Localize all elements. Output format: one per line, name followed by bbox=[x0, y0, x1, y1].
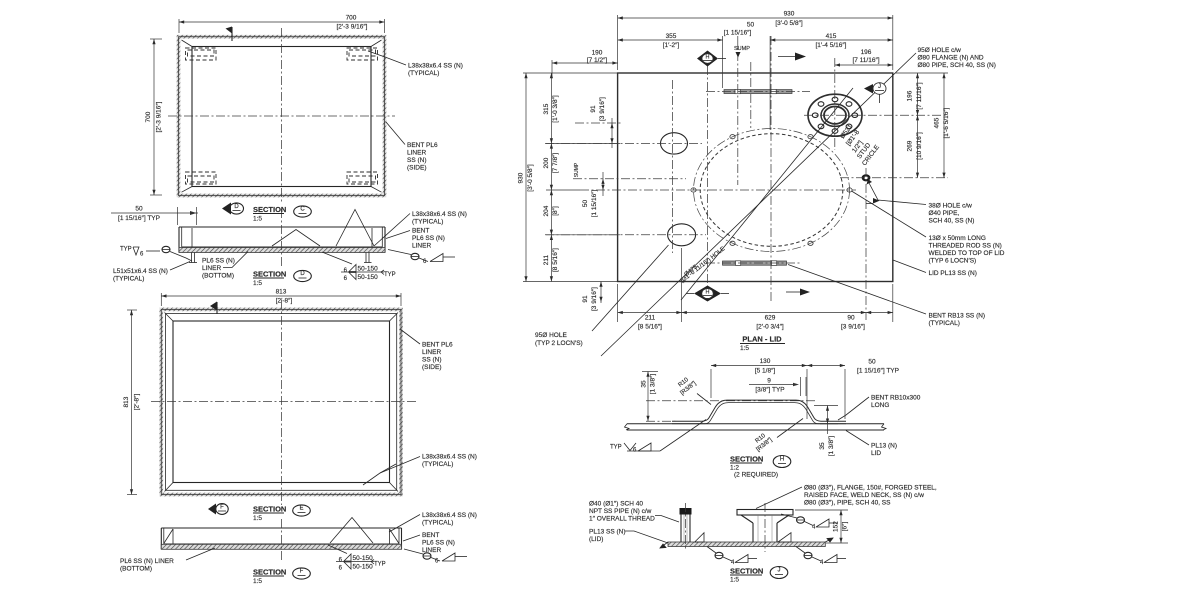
svg-text:SECTION: SECTION bbox=[253, 270, 286, 279]
svg-text:355: 355 bbox=[666, 33, 677, 40]
svg-text:1:5: 1:5 bbox=[253, 578, 262, 585]
svg-text:PL13 SS (N): PL13 SS (N) bbox=[589, 529, 626, 536]
svg-text:415: 415 bbox=[826, 33, 837, 40]
svg-text:315: 315 bbox=[543, 103, 550, 114]
svg-text:H: H bbox=[706, 290, 710, 296]
svg-text:SECTION: SECTION bbox=[730, 455, 763, 464]
svg-text:THREADED ROD SS (N): THREADED ROD SS (N) bbox=[929, 243, 1002, 250]
svg-text:196: 196 bbox=[861, 49, 872, 56]
svg-text:PLAN - LID: PLAN - LID bbox=[742, 335, 782, 344]
svg-text:930: 930 bbox=[784, 11, 795, 18]
svg-text:Ø80 (Ø3″), FLANGE, 150#, F: Ø80 (Ø3″), FLANGE, 150#, FORGED STEEL, bbox=[804, 485, 937, 492]
svg-text:SS (N): SS (N) bbox=[422, 357, 442, 364]
svg-text:190: 190 bbox=[592, 50, 603, 57]
svg-text:[8″]: [8″] bbox=[552, 206, 559, 216]
svg-text:BENT RB13 SS (N): BENT RB13 SS (N) bbox=[929, 313, 986, 320]
svg-text:[2′-3 9/16″]: [2′-3 9/16″] bbox=[156, 101, 163, 132]
svg-text:SECTION: SECTION bbox=[253, 568, 286, 577]
svg-text:LINER: LINER bbox=[412, 243, 431, 250]
svg-text:50-150: 50-150 bbox=[353, 564, 374, 571]
svg-text:[1 15/16″]: [1 15/16″] bbox=[591, 190, 598, 218]
svg-text:[7 11/16″]: [7 11/16″] bbox=[916, 82, 923, 109]
svg-text:(TYPICAL): (TYPICAL) bbox=[422, 461, 453, 468]
svg-text:Ø40 (Ø1″) SCH 40: Ø40 (Ø1″) SCH 40 bbox=[589, 501, 643, 508]
svg-text:930: 930 bbox=[518, 172, 525, 183]
svg-text:196: 196 bbox=[907, 90, 914, 101]
svg-text:(TYPICAL): (TYPICAL) bbox=[412, 219, 443, 226]
svg-text:TYP: TYP bbox=[120, 247, 132, 253]
svg-text:[1′-4 5/16″]: [1′-4 5/16″] bbox=[816, 42, 847, 49]
svg-text:SUMP: SUMP bbox=[574, 162, 580, 177]
svg-text:211: 211 bbox=[543, 254, 550, 265]
svg-text:BENT: BENT bbox=[412, 228, 429, 235]
svg-text:J: J bbox=[878, 84, 881, 90]
svg-text:LINER: LINER bbox=[202, 265, 221, 272]
svg-text:50: 50 bbox=[582, 200, 589, 208]
svg-text:BENT PL6: BENT PL6 bbox=[422, 342, 453, 349]
svg-text:TYP: TYP bbox=[384, 272, 396, 278]
svg-text:D: D bbox=[234, 204, 239, 210]
svg-text:Ø80 PIPE, SCH 40, SS (N): Ø80 PIPE, SCH 40, SS (N) bbox=[918, 62, 996, 69]
svg-text:(2 REQUIRED): (2 REQUIRED) bbox=[734, 472, 778, 479]
svg-text:50-150: 50-150 bbox=[358, 266, 379, 273]
svg-text:D: D bbox=[300, 271, 305, 277]
svg-text:[7 1/2″]: [7 1/2″] bbox=[587, 57, 608, 64]
svg-text:[3 9/16″]: [3 9/16″] bbox=[591, 287, 598, 311]
svg-text:91: 91 bbox=[590, 105, 597, 113]
svg-text:BENT: BENT bbox=[422, 532, 439, 539]
svg-text:Ø80 FLANGE (N) AND: Ø80 FLANGE (N) AND bbox=[918, 55, 984, 62]
svg-text:[3′-0 5/8″]: [3′-0 5/8″] bbox=[775, 20, 803, 27]
svg-text:(TYPICAL): (TYPICAL) bbox=[422, 520, 453, 527]
svg-text:[10 9/16″]: [10 9/16″] bbox=[916, 132, 923, 160]
svg-text:9: 9 bbox=[767, 378, 771, 385]
svg-text:PL6 SS (N): PL6 SS (N) bbox=[422, 540, 455, 547]
svg-text:[1′-0 3/8″]: [1′-0 3/8″] bbox=[552, 95, 559, 123]
svg-text:[1 15/16″] TYP: [1 15/16″] TYP bbox=[857, 368, 899, 375]
svg-text:95Ø HOLE c/w: 95Ø HOLE c/w bbox=[918, 47, 962, 54]
svg-text:91: 91 bbox=[582, 295, 589, 303]
svg-text:50: 50 bbox=[747, 22, 755, 29]
svg-text:[1 3/8″]: [1 3/8″] bbox=[828, 436, 835, 457]
svg-text:SECTION: SECTION bbox=[730, 567, 763, 576]
svg-text:(TYP 6 LOCN′S): (TYP 6 LOCN′S) bbox=[929, 258, 977, 265]
svg-text:(LID): (LID) bbox=[589, 536, 603, 543]
svg-text:200: 200 bbox=[543, 157, 550, 168]
svg-text:LONG: LONG bbox=[871, 402, 889, 409]
svg-text:(TYPICAL): (TYPICAL) bbox=[408, 70, 439, 77]
svg-text:H: H bbox=[780, 457, 784, 463]
svg-text:TYP: TYP bbox=[374, 562, 386, 568]
svg-text:50: 50 bbox=[135, 206, 143, 213]
svg-text:[2′-8″]: [2′-8″] bbox=[134, 394, 141, 411]
svg-text:211: 211 bbox=[645, 315, 656, 322]
svg-text:(SIDE): (SIDE) bbox=[407, 165, 427, 172]
svg-text:(TYP 2 LOCN′S): (TYP 2 LOCN′S) bbox=[535, 340, 583, 347]
svg-text:LID: LID bbox=[871, 450, 881, 457]
svg-text:[3′-0 5/8″]: [3′-0 5/8″] bbox=[527, 164, 534, 192]
svg-text:[5 1/8″]: [5 1/8″] bbox=[755, 368, 776, 375]
svg-text:90: 90 bbox=[847, 315, 855, 322]
svg-text:L51x51x6.4 SS (N): L51x51x6.4 SS (N) bbox=[113, 268, 168, 275]
svg-text:SUMP: SUMP bbox=[734, 46, 750, 52]
svg-text:813: 813 bbox=[123, 396, 130, 407]
svg-text:50-150: 50-150 bbox=[353, 555, 374, 562]
svg-text:465: 465 bbox=[934, 117, 941, 128]
svg-text:[3 9/16″]: [3 9/16″] bbox=[841, 324, 865, 331]
svg-text:LID PL13 SS (N): LID PL13 SS (N) bbox=[929, 270, 977, 277]
svg-text:F: F bbox=[300, 569, 304, 575]
svg-text:RAISED FACE, WELD NECK, SS: RAISED FACE, WELD NECK, SS (N) c/w bbox=[804, 492, 924, 499]
svg-text:130: 130 bbox=[760, 358, 771, 365]
svg-text:E: E bbox=[299, 506, 303, 512]
svg-text:1:5: 1:5 bbox=[730, 577, 739, 584]
svg-text:152: 152 bbox=[833, 521, 840, 532]
svg-text:[7 11/16″]: [7 11/16″] bbox=[852, 57, 879, 64]
svg-text:PL13 (N): PL13 (N) bbox=[871, 443, 897, 450]
svg-text:1:5: 1:5 bbox=[253, 280, 262, 287]
svg-text:LINER: LINER bbox=[422, 349, 441, 356]
svg-text:H: H bbox=[706, 55, 710, 61]
svg-text:L38x38x6.4 SS (N): L38x38x6.4 SS (N) bbox=[408, 63, 463, 70]
svg-text:[2′-0 3/4″]: [2′-0 3/4″] bbox=[756, 324, 784, 331]
svg-text:700: 700 bbox=[145, 111, 152, 122]
svg-text:PL6 SS (N): PL6 SS (N) bbox=[202, 258, 235, 265]
svg-text:35: 35 bbox=[819, 442, 826, 450]
svg-text:[1′-2″]: [1′-2″] bbox=[663, 42, 680, 49]
svg-text:[8 5/16″]: [8 5/16″] bbox=[552, 248, 559, 272]
svg-text:269: 269 bbox=[907, 140, 914, 151]
svg-text:SECTION: SECTION bbox=[253, 505, 286, 514]
svg-text:1:5: 1:5 bbox=[253, 515, 262, 522]
svg-text:[3/8″] TYP: [3/8″] TYP bbox=[755, 387, 784, 394]
svg-text:L38x38x6.4 SS (N): L38x38x6.4 SS (N) bbox=[422, 512, 477, 519]
svg-text:[2′-3 9/16″]: [2′-3 9/16″] bbox=[337, 24, 368, 31]
svg-text:(BOTTOM): (BOTTOM) bbox=[202, 273, 234, 280]
svg-text:BENT RB10x300: BENT RB10x300 bbox=[871, 395, 921, 402]
svg-text:204: 204 bbox=[543, 205, 550, 216]
svg-text:[7 7/8″]: [7 7/8″] bbox=[552, 153, 559, 174]
svg-text:1:5: 1:5 bbox=[740, 345, 749, 352]
svg-text:NPT SS PIPE (N) c/w: NPT SS PIPE (N) c/w bbox=[589, 508, 652, 515]
svg-text:1:2: 1:2 bbox=[730, 465, 739, 472]
svg-text:629: 629 bbox=[765, 315, 776, 322]
svg-text:35: 35 bbox=[641, 380, 648, 388]
svg-text:(BOTTOM): (BOTTOM) bbox=[120, 566, 152, 573]
svg-text:J: J bbox=[778, 568, 781, 574]
svg-text:TYP: TYP bbox=[610, 445, 622, 451]
svg-text:PL6 SS (N) LINER: PL6 SS (N) LINER bbox=[120, 558, 174, 565]
svg-text:WELDED TO TOP OF LID: WELDED TO TOP OF LID bbox=[929, 250, 1005, 257]
svg-text:Ø40 PIPE,: Ø40 PIPE, bbox=[929, 210, 960, 217]
svg-text:(TYPICAL): (TYPICAL) bbox=[113, 276, 144, 283]
svg-text:[8 5/16″]: [8 5/16″] bbox=[638, 324, 662, 331]
svg-text:(TYPICAL): (TYPICAL) bbox=[929, 320, 960, 327]
svg-text:38Ø HOLE c/w: 38Ø HOLE c/w bbox=[929, 203, 973, 210]
svg-text:F: F bbox=[220, 505, 224, 511]
svg-text:1″ OVERALL THREAD: 1″ OVERALL THREAD bbox=[589, 516, 655, 523]
svg-text:[1′-6 5/16″]: [1′-6 5/16″] bbox=[943, 107, 950, 138]
svg-text:813: 813 bbox=[276, 289, 287, 296]
svg-text:L38x38x6.4 SS (N): L38x38x6.4 SS (N) bbox=[412, 211, 467, 218]
svg-text:C: C bbox=[300, 207, 305, 213]
svg-text:700: 700 bbox=[346, 15, 357, 22]
svg-text:[2′-8″]: [2′-8″] bbox=[276, 298, 293, 305]
svg-text:SS (N): SS (N) bbox=[407, 157, 427, 164]
svg-text:50: 50 bbox=[868, 359, 876, 366]
svg-text:LINER: LINER bbox=[407, 150, 426, 157]
svg-text:[6″]: [6″] bbox=[842, 522, 849, 532]
svg-text:[1 3/8″]: [1 3/8″] bbox=[650, 374, 657, 395]
svg-text:[3 9/16″]: [3 9/16″] bbox=[599, 97, 606, 121]
svg-text:SCH 40, SS (N): SCH 40, SS (N) bbox=[929, 218, 975, 225]
svg-text:13Ø x 50mm LONG: 13Ø x 50mm LONG bbox=[929, 235, 986, 242]
svg-text:[1 15/16″]: [1 15/16″] bbox=[724, 30, 752, 37]
svg-text:(SIDE): (SIDE) bbox=[422, 364, 442, 371]
svg-text:50-150: 50-150 bbox=[358, 274, 379, 281]
svg-text:1:5: 1:5 bbox=[253, 216, 262, 223]
svg-text:PL6 SS (N): PL6 SS (N) bbox=[412, 235, 445, 242]
svg-text:Ø80 (Ø3″), PIPE, SCH 40,: Ø80 (Ø3″), PIPE, SCH 40, SS bbox=[804, 500, 891, 507]
svg-text:BENT PL6: BENT PL6 bbox=[407, 142, 438, 149]
svg-text:L38x38x6.4 SS (N): L38x38x6.4 SS (N) bbox=[422, 454, 477, 461]
svg-text:95Ø HOLE: 95Ø HOLE bbox=[535, 332, 567, 339]
svg-text:SECTION: SECTION bbox=[253, 205, 286, 214]
svg-text:[1 15/16″] TYP: [1 15/16″] TYP bbox=[118, 215, 160, 222]
